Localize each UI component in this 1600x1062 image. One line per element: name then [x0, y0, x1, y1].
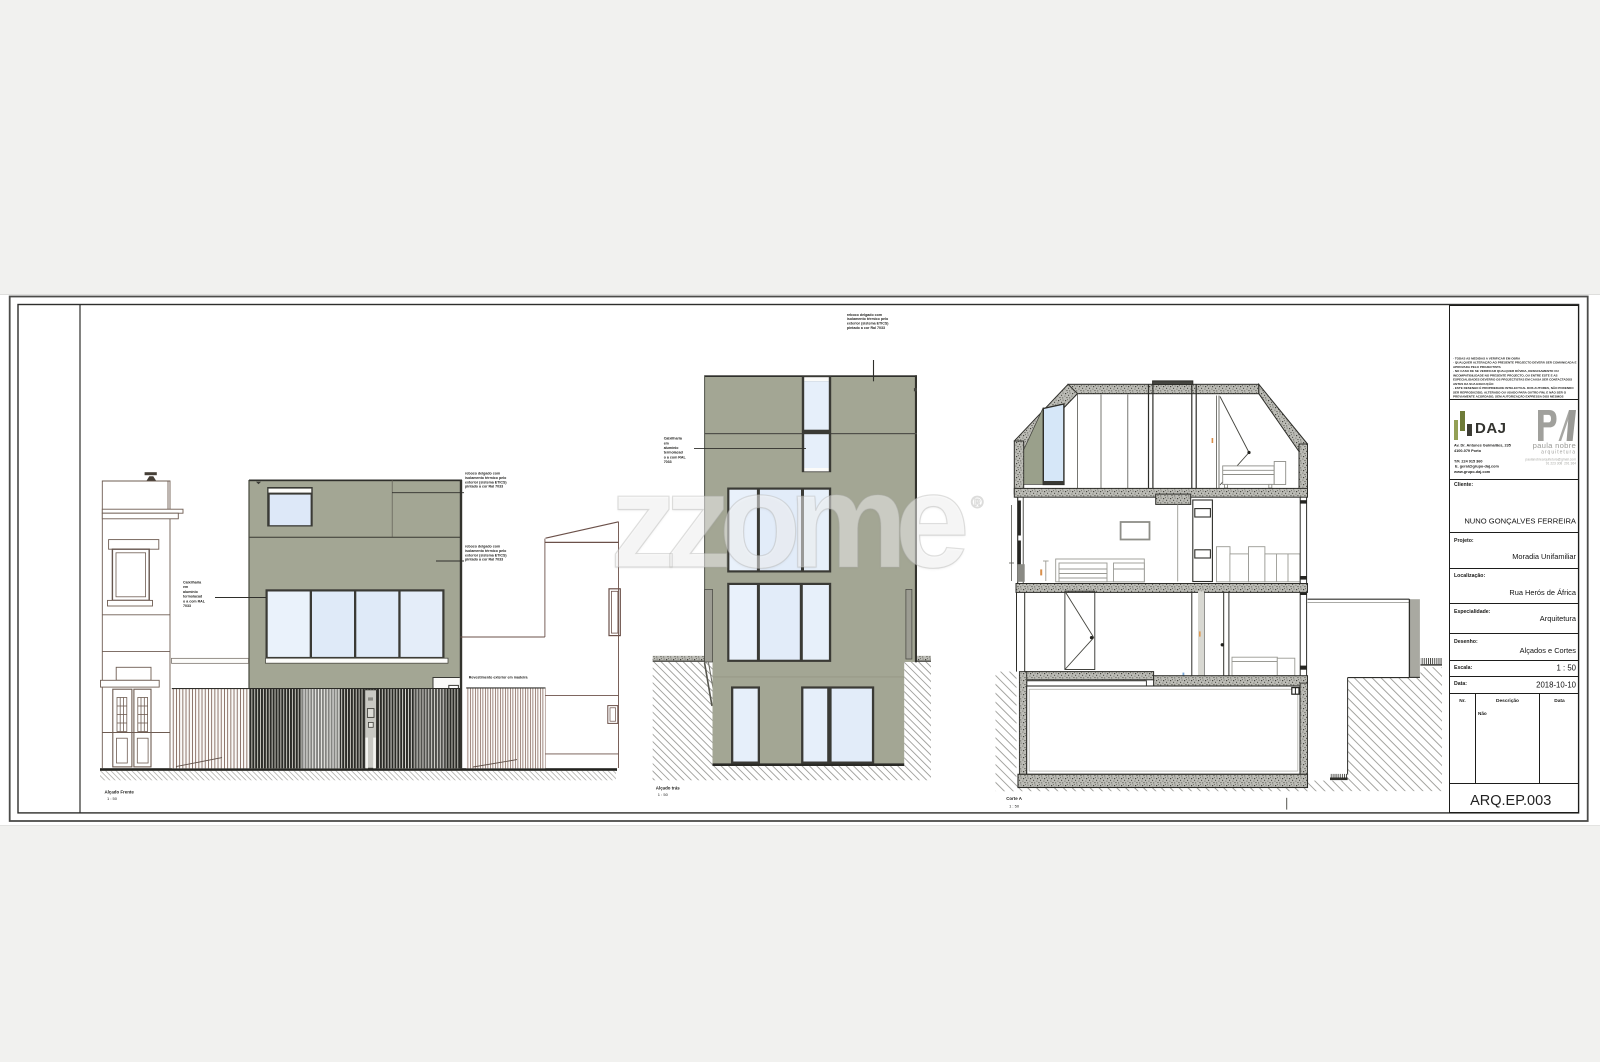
- svg-text:o a com RAL: o a com RAL: [183, 599, 206, 603]
- svg-text:1 : 50: 1 : 50: [107, 796, 118, 801]
- svg-text:pintado a cor Ral 7033: pintado a cor Ral 7033: [465, 485, 503, 489]
- svg-text:Revestimento exterior em madei: Revestimento exterior em madeira: [469, 676, 529, 680]
- svg-text:reboco delgado com: reboco delgado com: [465, 472, 500, 476]
- svg-text:Caixilharia: Caixilharia: [664, 437, 683, 441]
- svg-text:em: em: [664, 441, 669, 445]
- svg-text:pintado a cor Ral 7033: pintado a cor Ral 7033: [847, 326, 885, 330]
- svg-text:reboco delgado com: reboco delgado com: [465, 545, 500, 549]
- svg-text:isolamento térmico pelo: isolamento térmico pelo: [465, 476, 507, 480]
- svg-text:1 : 50: 1 : 50: [658, 792, 669, 797]
- svg-text:alumínio: alumínio: [183, 590, 199, 594]
- svg-text:7033: 7033: [183, 604, 191, 608]
- svg-text:1 : 50: 1 : 50: [1009, 803, 1020, 808]
- svg-text:isolamento térmico pelo: isolamento térmico pelo: [465, 549, 507, 553]
- svg-text:reboco delgado com: reboco delgado com: [847, 313, 882, 317]
- svg-text:Caixilharia: Caixilharia: [183, 581, 202, 585]
- svg-text:exterior (sistema ETICS): exterior (sistema ETICS): [465, 480, 507, 484]
- svg-text:Corte A: Corte A: [1006, 796, 1023, 801]
- svg-text:exterior (sistema ETICS): exterior (sistema ETICS): [847, 322, 889, 326]
- svg-text:Alçado Frente: Alçado Frente: [105, 790, 135, 795]
- svg-text:Alçado trás: Alçado trás: [656, 785, 680, 790]
- svg-text:isolamento térmico pelo: isolamento térmico pelo: [847, 317, 889, 321]
- svg-text:termolacad: termolacad: [183, 595, 202, 599]
- svg-text:em: em: [183, 585, 188, 589]
- svg-text:pintado a cor Ral 7033: pintado a cor Ral 7033: [465, 558, 503, 562]
- svg-text:exterior (sistema ETICS): exterior (sistema ETICS): [465, 553, 507, 557]
